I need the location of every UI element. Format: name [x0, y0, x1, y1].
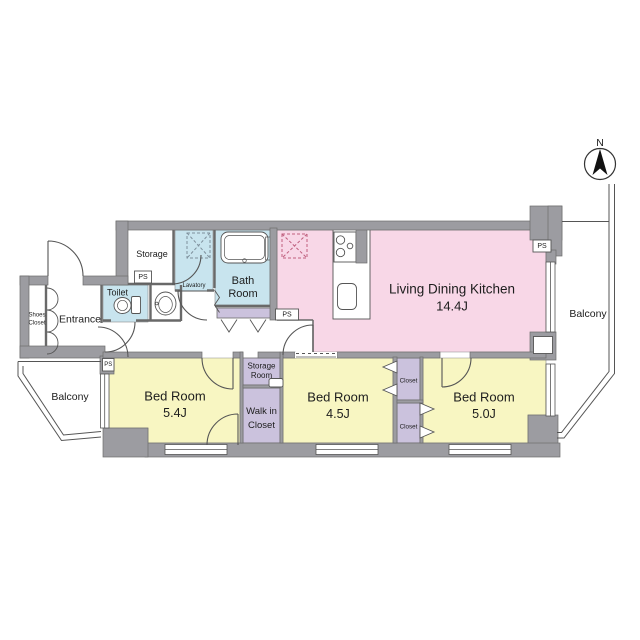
linen-closet-strip — [217, 308, 272, 318]
ldk-door-arc — [283, 325, 313, 355]
storage-room-label-2: Room — [251, 371, 273, 380]
wash-basin-icon — [155, 292, 176, 315]
bed3-name: Bed Room — [453, 390, 514, 405]
floor-plan-canvas: N Living Dining Kitchen 14.4J Bed Room 5… — [0, 0, 640, 640]
bath-label-2: Room — [228, 288, 257, 300]
ps-label-hall: PS — [282, 312, 292, 319]
bath-label-1: Bath — [232, 275, 255, 287]
kitchen-counter — [333, 226, 370, 319]
toilet-label: Toilet — [107, 288, 129, 298]
balcony-right-label: Balcony — [569, 308, 607, 320]
bed2-name: Bed Room — [307, 390, 368, 405]
storage-room-label-1: Storage — [247, 362, 276, 371]
kitchen-sink-icon — [338, 284, 357, 310]
balcony-left-label: Balcony — [51, 391, 89, 403]
closet-b-label: Closet — [400, 424, 418, 431]
shoes-closet-label-1: Shoes — [28, 313, 45, 319]
ldk-name: Living Dining Kitchen — [389, 282, 515, 297]
room-lavatory — [175, 230, 213, 291]
ps-label-bed1: PS — [104, 362, 112, 368]
kitchen-partition-wall — [356, 226, 367, 263]
linen-closet-folding-doors — [221, 320, 266, 333]
bed1-size: 5.4J — [163, 406, 187, 420]
wic-label-2: Closet — [248, 420, 275, 431]
entrance-door-arc — [48, 241, 83, 276]
lavatory-door-arc — [178, 291, 207, 320]
north-label: N — [596, 137, 604, 149]
entrance-door-gap — [49, 276, 83, 286]
storage-label: Storage — [136, 249, 168, 259]
toilet-icon — [114, 297, 141, 314]
ps-label-top-right: PS — [537, 243, 547, 250]
floor-plan: N Living Dining Kitchen 14.4J Bed Room 5… — [0, 0, 640, 640]
ac-slot-box — [534, 337, 553, 354]
bed3-size: 5.0J — [472, 407, 496, 421]
north-compass: N — [585, 137, 616, 180]
bathtub-icon — [221, 232, 271, 263]
bed1-name: Bed Room — [144, 389, 205, 404]
bed2-size: 4.5J — [326, 407, 350, 421]
ps-label-storage: PS — [138, 274, 148, 281]
ldk-size: 14.4J — [436, 299, 468, 314]
shoes-closet-label-2: Closet — [28, 321, 45, 327]
entrance-label: Entrance — [59, 314, 101, 326]
wic-label-1: Walk in — [246, 406, 277, 417]
closet-a-label: Closet — [400, 378, 418, 385]
bed2-sliding-door — [295, 352, 337, 358]
shoes-closet-doors — [47, 288, 58, 354]
lavatory-label: Lavatory — [182, 283, 205, 289]
